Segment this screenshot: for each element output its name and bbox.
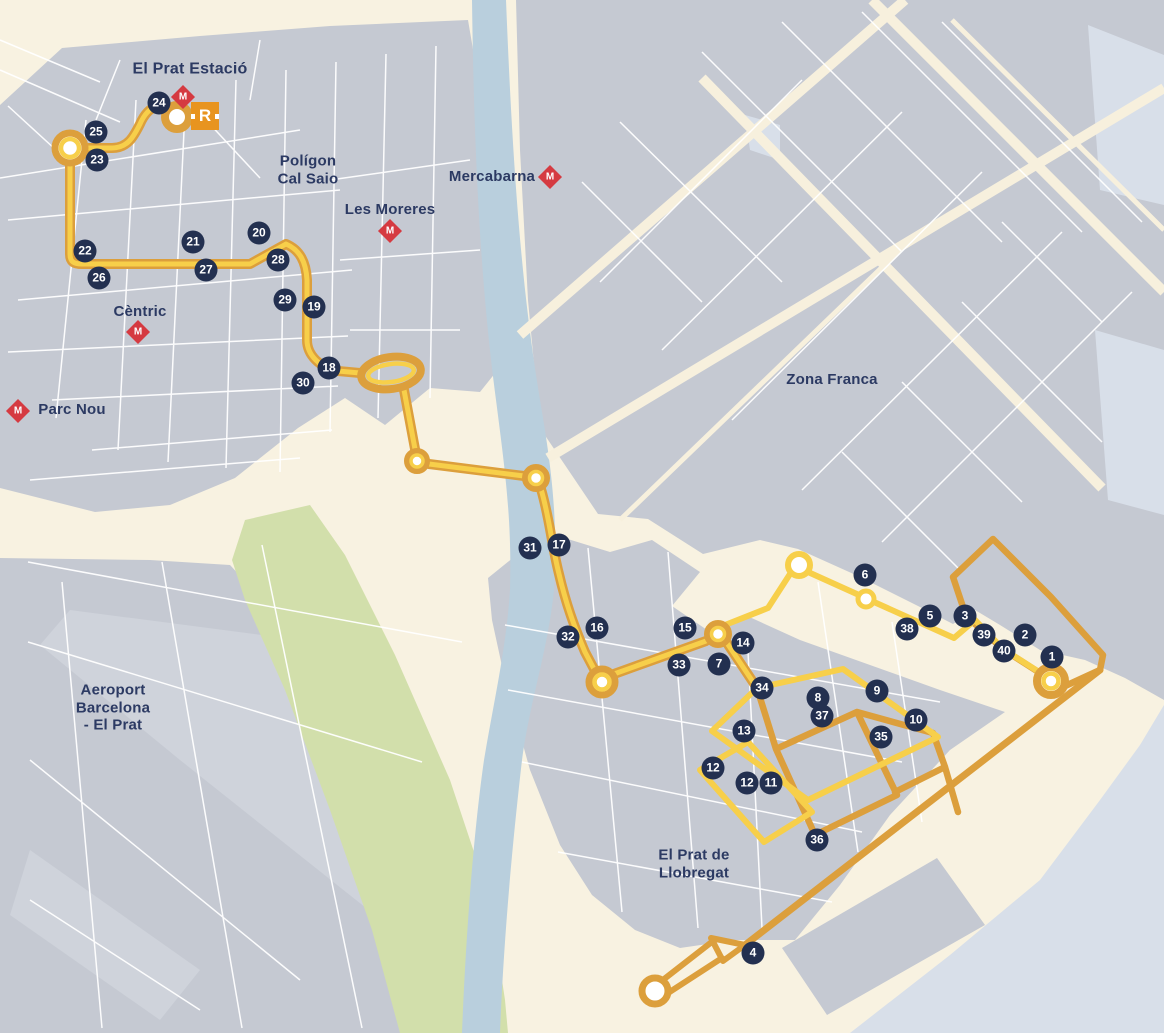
stop-badge-23: 23 [86,149,109,172]
stop-badge-2: 2 [1014,624,1037,647]
stop-badge-26: 26 [88,267,111,290]
stop-badge-9: 9 [866,680,889,703]
map-canvas [0,0,1164,1033]
stop-badge-12: 12 [702,757,725,780]
rodalies-icon: R [191,102,219,130]
route-orange-turnaround [659,938,745,995]
place-label-parc-nou: Parc Nou [38,401,105,419]
metro-icon-les-moreres: M [378,219,402,243]
stop-badge-12: 12 [736,772,759,795]
stop-badge-39: 39 [973,624,996,647]
stop-badge-17: 17 [548,534,571,557]
stop-badge-36: 36 [806,829,829,852]
stop-badge-34: 34 [751,677,774,700]
stop-badge-30: 30 [292,372,315,395]
stop-badge-11: 11 [760,772,783,795]
place-label-les-moreres: Les Moreres [345,201,436,219]
transit-map: El Prat EstacióPolígonCal SaioLes Morere… [0,0,1164,1033]
stop-badge-20: 20 [248,222,271,245]
stop-badge-13: 13 [733,720,756,743]
place-label-el-prat-estacio: El Prat Estació [132,61,247,80]
place-label-aeroport-barcelona-el-prat: AeroportBarcelona- El Prat [76,681,150,734]
stop-badge-4: 4 [742,942,765,965]
stop-badge-24: 24 [148,92,171,115]
stop-badge-15: 15 [674,617,697,640]
stop-badge-40: 40 [993,640,1016,663]
stop-badge-6: 6 [854,564,877,587]
place-label-el-prat-de-llobregat: El Prat deLlobregat [658,846,729,881]
metro-icon-parc-nou: M [6,399,30,423]
terminal-south [642,978,668,1004]
stop-badge-18: 18 [318,357,341,380]
metro-m-label: M [130,324,147,341]
stop-badge-5: 5 [919,605,942,628]
stop-badge-7: 7 [708,653,731,676]
stop-badge-33: 33 [668,654,691,677]
place-label-poligon-cal-saio: PolígonCal Saio [278,152,339,187]
metro-m-label: M [382,223,399,240]
stop-badge-1: 1 [1041,646,1064,669]
stop-badge-29: 29 [274,289,297,312]
metro-m-label: M [10,403,27,420]
metro-m-label: M [175,89,192,106]
roundabout-east [1037,667,1065,695]
metro-icon-centric: M [126,320,150,344]
stop-badge-35: 35 [870,726,893,749]
stop-badge-32: 32 [557,626,580,649]
metro-m-label: M [542,169,559,186]
metro-icon-mercabarna: M [538,165,562,189]
stop-badge-14: 14 [732,632,755,655]
stop-badge-22: 22 [74,240,97,263]
rodalies-r-label: R [191,102,219,130]
stop-badge-3: 3 [954,605,977,628]
stop-badge-31: 31 [519,537,542,560]
stop-badge-27: 27 [195,259,218,282]
stop-badge-21: 21 [182,231,205,254]
stop-badge-38: 38 [896,618,919,641]
place-label-mercabarna: Mercabarna [449,168,535,186]
roundabout-yellow [788,554,810,576]
stop-badge-19: 19 [303,296,326,319]
stop-badge-25: 25 [85,121,108,144]
stop-badge-16: 16 [586,617,609,640]
stop-badge-37: 37 [811,705,834,728]
junction-yellow-small [858,591,874,607]
stop-badge-28: 28 [267,249,290,272]
place-label-zona-franca: Zona Franca [786,371,877,389]
stop-badge-10: 10 [905,709,928,732]
place-label-centric: Cèntric [113,303,166,321]
